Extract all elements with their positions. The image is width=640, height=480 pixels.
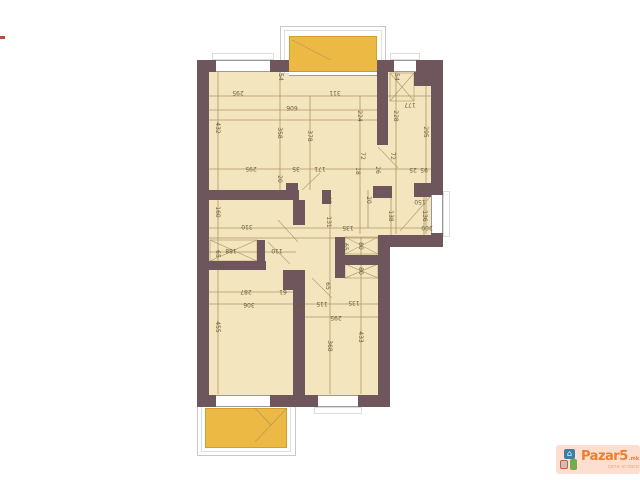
dimension-label: 35 xyxy=(296,300,304,306)
wall-segment xyxy=(345,255,378,265)
top-balcony-door xyxy=(289,71,377,76)
dimension-label: 20 xyxy=(365,196,371,204)
floorplan: 2953116065454384323583782242281772952952… xyxy=(0,0,640,480)
dimension-label: 295 xyxy=(245,165,256,171)
house-icon: ⌂ xyxy=(564,449,575,459)
window-sill xyxy=(314,407,362,414)
dimension-label: 311 xyxy=(329,89,340,95)
dimension-label: 310 xyxy=(241,223,252,229)
dimension-label: 287 xyxy=(240,288,251,294)
dimension-label: 65 xyxy=(324,282,330,290)
dimension-label: 48 xyxy=(325,196,331,204)
brand-tagline: сите огласи xyxy=(581,464,639,470)
dimension-label: 295 xyxy=(422,126,428,137)
bottle-icon xyxy=(570,459,577,470)
dimension-label: 177 xyxy=(404,101,415,107)
dimension-label: 38 xyxy=(419,184,425,192)
wall-segment xyxy=(378,235,390,407)
dimension-label: 224 xyxy=(356,110,362,121)
dimension-label: 228 xyxy=(392,110,398,121)
dimension-label: 188 xyxy=(225,247,236,253)
dimension-label: 115 xyxy=(316,300,327,306)
wall-segment xyxy=(257,240,265,262)
dimension-label: 295 xyxy=(232,89,243,95)
brand-tld: .mk xyxy=(629,456,639,462)
dimension-label: 80 xyxy=(357,242,363,250)
dimension-label: 131 xyxy=(325,216,331,227)
brand-text: Pazar5 xyxy=(581,450,628,463)
window-sill xyxy=(443,191,450,237)
wall-segment xyxy=(377,72,388,145)
dimension-label: 95 xyxy=(420,166,428,172)
dimension-label: 455 xyxy=(214,321,220,332)
window xyxy=(431,195,443,233)
watermark-logo: ⌂ xyxy=(559,449,579,471)
dimension-label: 54 xyxy=(393,73,399,81)
dimension-label: 72 xyxy=(389,152,395,160)
dimension-label: 368 xyxy=(326,340,332,351)
red-edge-artifact xyxy=(0,36,5,39)
dimension-label: 200 xyxy=(421,224,432,230)
dimension-label: 136 xyxy=(421,210,427,221)
window-sill xyxy=(212,53,274,60)
dimension-label: 38 xyxy=(421,76,427,84)
dimension-label: 26 xyxy=(374,166,380,174)
wall-segment xyxy=(286,183,298,191)
wall-segment xyxy=(373,186,392,198)
dimension-label: 65 xyxy=(342,243,348,251)
dimension-label: 171 xyxy=(314,165,325,171)
dimension-label: 306 xyxy=(243,301,254,307)
dimension-label: 606 xyxy=(286,104,297,110)
dimension-label: 65 xyxy=(214,250,220,258)
window-sill xyxy=(390,53,420,60)
dimension-label: 20 xyxy=(276,175,282,183)
dimension-label: 295 xyxy=(330,314,341,320)
window xyxy=(216,395,270,407)
dimension-label: 80 xyxy=(357,267,363,275)
dimension-label: 160 xyxy=(214,206,220,217)
dimension-label: 61 xyxy=(279,288,287,294)
dimension-label: 72 xyxy=(359,152,365,160)
dimension-label: 54 xyxy=(277,73,283,81)
window xyxy=(318,395,358,407)
window xyxy=(216,60,270,72)
wall-segment xyxy=(283,270,293,290)
dimension-label: 110 xyxy=(271,247,282,253)
dimension-label: 135 xyxy=(342,224,353,230)
dimension-label: 35 xyxy=(292,165,300,171)
dimension-label: 135 xyxy=(348,299,359,305)
dimension-label: 138 xyxy=(387,210,393,221)
dimension-label: 378 xyxy=(306,130,312,141)
wall-segment xyxy=(209,190,299,200)
dimension-label: 433 xyxy=(357,331,363,342)
box-icon xyxy=(560,460,568,469)
floorplan-image: 2953116065454384323583782242281772952952… xyxy=(0,0,640,480)
wall-segment xyxy=(293,270,305,395)
dimension-label: 25 xyxy=(409,166,417,172)
dimension-label: 150 xyxy=(414,198,425,204)
dimension-label: 358 xyxy=(276,127,282,138)
wall-segment xyxy=(197,60,209,407)
watermark-text: Pazar5 .mk сите огласи xyxy=(581,450,639,470)
window xyxy=(394,60,416,72)
watermark: ⌂ Pazar5 .mk сите огласи xyxy=(556,445,640,474)
dimension-label: 432 xyxy=(214,122,220,133)
dimension-label: 18 xyxy=(354,167,360,175)
wall-segment xyxy=(293,200,305,225)
dimension-label: 98 xyxy=(218,262,224,270)
